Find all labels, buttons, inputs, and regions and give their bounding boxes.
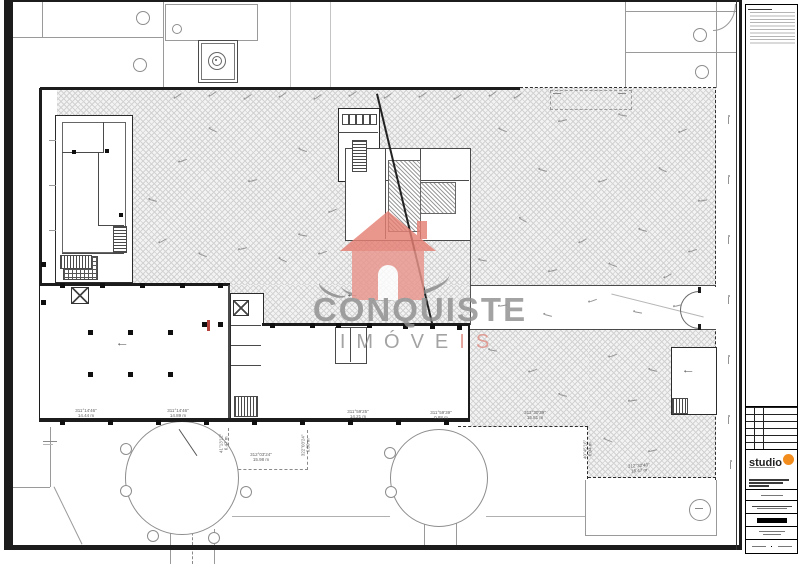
dim-length: 15.81 m: [527, 415, 543, 420]
column: [105, 149, 109, 153]
dim-angle: 311°59'25": [347, 409, 368, 414]
sheet-frame-right-inner: [736, 0, 737, 550]
stairs: [60, 255, 92, 269]
dimension-label: 40°45'16"6.04 m: [583, 425, 594, 473]
wc-fixture: [363, 114, 370, 125]
column: [60, 283, 65, 288]
partition: [98, 152, 99, 225]
stairs: [672, 398, 688, 414]
hall-d-right-wall: [468, 325, 470, 419]
field-value: [759, 531, 785, 532]
lot-line: [13, 37, 163, 38]
field-value: [778, 546, 792, 547]
column: [140, 283, 145, 288]
column: [336, 323, 341, 328]
field-cell: [746, 546, 771, 547]
hatched-room: [420, 182, 456, 214]
gate-post: [698, 287, 701, 293]
notes-section: [746, 5, 797, 48]
survey-mark: [728, 357, 729, 364]
yard-wall: [470, 240, 471, 325]
lot-line: [42, 0, 43, 37]
column: [180, 283, 185, 288]
street-name: [43, 444, 53, 445]
dimension-label: 311°59'39"0.88 m: [416, 410, 466, 421]
logo-tagline: [749, 467, 775, 468]
column: [128, 372, 133, 377]
street-name: [43, 441, 57, 442]
partition: [385, 148, 386, 239]
lot-number-circle: [689, 499, 711, 521]
column: [100, 283, 105, 288]
address-section: [746, 477, 797, 490]
partition: [231, 325, 261, 326]
column: [218, 322, 223, 327]
column: [403, 324, 408, 329]
partition: [103, 122, 104, 152]
lot-line: [625, 52, 737, 53]
lot-number-circle: [693, 28, 707, 42]
wc-fixture: [349, 114, 356, 125]
field-row: [746, 489, 797, 500]
curb-arc: [713, 4, 736, 31]
survey-mark: [728, 417, 729, 424]
address-line: [749, 479, 789, 481]
field-value: [752, 506, 792, 508]
revision-table-divider: [763, 407, 764, 449]
dimension-label: 41°13'12"6.47 m: [219, 419, 230, 467]
two-bay-divider: [350, 327, 351, 362]
notes-text-lines: [750, 12, 795, 46]
revision-table-divider: [754, 407, 755, 449]
sidewalk-line: [50, 427, 51, 487]
boundary-dashed-south3: [588, 477, 716, 478]
structure-edge: [165, 4, 166, 41]
hall-b: [40, 285, 230, 419]
hall-b-top-wall: [40, 283, 230, 286]
revision-table: [746, 406, 797, 450]
column: [60, 420, 65, 425]
door-tick: [49, 140, 56, 141]
dim-angle: 311°14'46": [75, 408, 96, 413]
column: [88, 372, 93, 377]
survey-mark: [730, 462, 731, 469]
manhole-target-dot: [215, 59, 217, 61]
dim-angle: 311°59'39": [430, 410, 451, 415]
column: [128, 330, 133, 335]
dim-length: 15.98 m: [253, 457, 269, 462]
elevator: [233, 300, 249, 316]
red-survey-tick: [207, 320, 210, 331]
column: [218, 283, 223, 288]
column: [108, 420, 113, 425]
stairs: [352, 140, 367, 172]
column: [396, 420, 401, 425]
field-cell: [771, 546, 797, 547]
column: [457, 325, 462, 330]
logo-section: studio: [746, 450, 797, 477]
elevator: [71, 287, 89, 304]
survey-mark: [728, 237, 729, 244]
tree-circle: [120, 485, 132, 497]
tree-circle: [384, 447, 396, 459]
dimension-label: 322°03'24"6.80 m: [301, 421, 312, 469]
wc-fixture: [342, 114, 349, 125]
field-row: [746, 500, 797, 513]
tree-circle: [120, 443, 132, 455]
redacted-field: [757, 518, 787, 523]
driveway-edge: [470, 329, 716, 330]
survey-mark: [728, 297, 729, 304]
sheet-frame-top: [4, 0, 740, 2]
sheet-frame-left: [4, 0, 13, 550]
boundary-dashed-top: [520, 87, 716, 88]
door-tick: [49, 185, 56, 186]
column: [204, 420, 209, 425]
dimension-label: 311°14'46"14.44 m: [56, 408, 116, 419]
sheet-frame-right: [739, 0, 742, 550]
survey-point-circle: [172, 24, 182, 34]
street-edge: [424, 523, 425, 546]
field-value: [752, 546, 766, 547]
dim-angle: 322°03'24": [301, 435, 306, 457]
partition: [231, 365, 261, 366]
street-edge: [232, 516, 390, 517]
dim-length: 6.47 m: [224, 437, 229, 451]
dim-length: 6.80 m: [306, 439, 311, 453]
dim-length: 14.44 m: [78, 413, 94, 418]
dim-length: 14.21 m: [350, 414, 366, 419]
wc-fixture: [356, 114, 363, 125]
column: [430, 324, 435, 329]
stairs: [113, 226, 127, 253]
field-value: [763, 534, 781, 535]
dim-tie: [228, 469, 308, 470]
field-value: [761, 495, 783, 496]
two-bay-room: [335, 327, 367, 364]
dim-length: 14.89 m: [170, 413, 186, 418]
lot-line: [163, 0, 164, 88]
column: [41, 300, 46, 305]
dimension-label: 312°03'24"15.98 m: [230, 452, 292, 463]
dimension-label: 312°30'39"15.81 m: [506, 410, 564, 421]
sidewalk-line: [54, 487, 83, 545]
manhole-target-inner: [212, 56, 222, 66]
dim-angle: 312°30'39": [524, 410, 546, 415]
door-tick: [49, 230, 56, 231]
column: [72, 150, 76, 154]
hatched-room: [388, 160, 421, 232]
room-label-arrow: ⟵: [348, 293, 357, 299]
room-label-arrow: ⟵: [118, 342, 127, 348]
field-row: [746, 513, 797, 526]
street-edge: [486, 516, 586, 517]
column: [156, 420, 161, 425]
column: [168, 330, 173, 335]
tree-circle: [147, 530, 159, 542]
hatch-yard-mid: [230, 285, 470, 325]
old-curb-line: [290, 2, 291, 88]
sheet-frame-bottom: [4, 545, 742, 550]
sidewalk-line: [13, 487, 50, 488]
lot-number-circle: [133, 58, 147, 72]
column: [202, 322, 207, 327]
street-edge: [456, 521, 457, 546]
partition: [338, 132, 378, 133]
dim-length: 0.88 m: [434, 415, 448, 420]
hall-b-right-wall: [228, 285, 230, 419]
survey-mark: [728, 177, 729, 184]
dim-length: 6.04 m: [588, 443, 593, 457]
structure-edge: [257, 4, 258, 41]
tree-circle: [385, 486, 397, 498]
dim-angle: 40°45'16": [583, 440, 588, 459]
tree-circle: [240, 486, 252, 498]
address-line: [749, 482, 783, 484]
column: [367, 323, 372, 328]
partition: [62, 253, 124, 254]
dim-length: 16.47 m: [631, 468, 648, 474]
field-row-split: [746, 539, 797, 553]
dimension-label: 311°59'25"14.21 m: [330, 409, 386, 420]
dim-angle: 312°03'24": [250, 452, 272, 457]
studio-logo-dot: [783, 454, 794, 465]
column: [310, 323, 315, 328]
lot-number-circle: [136, 11, 150, 25]
gate-post: [698, 324, 701, 330]
architectural-site-plan-sheet: { "watermark": { "line1": "CONQUISTE", "…: [0, 0, 802, 564]
hall-d-top-wall: [262, 323, 470, 326]
column: [252, 420, 257, 425]
boundary-dashed-south1: [458, 426, 588, 427]
column: [270, 323, 275, 328]
field-value: [757, 508, 787, 509]
address-line: [749, 485, 769, 487]
boundary-wall-top: [40, 87, 520, 90]
room-label-arrow: ⟵: [684, 369, 693, 375]
notes-heading: [748, 9, 772, 11]
column: [348, 420, 353, 425]
column: [168, 372, 173, 377]
field-row: [746, 526, 797, 539]
tiny-note: [618, 93, 626, 94]
wc-fixture: [370, 114, 377, 125]
driveway-edge: [470, 285, 716, 286]
dim-angle: 41°13'12": [219, 434, 224, 453]
stairs: [234, 396, 258, 417]
column: [41, 262, 46, 267]
survey-mark: [728, 117, 729, 124]
title-block: studio: [745, 4, 798, 554]
lot-number: [695, 508, 703, 509]
tiny-note: [553, 93, 561, 94]
lot-line: [625, 0, 626, 88]
dim-angle: 311°14'46": [167, 408, 188, 413]
tree-circle: [208, 532, 220, 544]
lot-number-circle: [695, 65, 709, 79]
column: [119, 213, 123, 217]
cul-de-sac-2: [390, 429, 488, 527]
old-curb-line: [330, 2, 331, 88]
partition: [231, 345, 261, 346]
column: [88, 330, 93, 335]
dimension-label: 311°14'46"14.89 m: [148, 408, 208, 419]
structure-edge: [165, 4, 257, 5]
